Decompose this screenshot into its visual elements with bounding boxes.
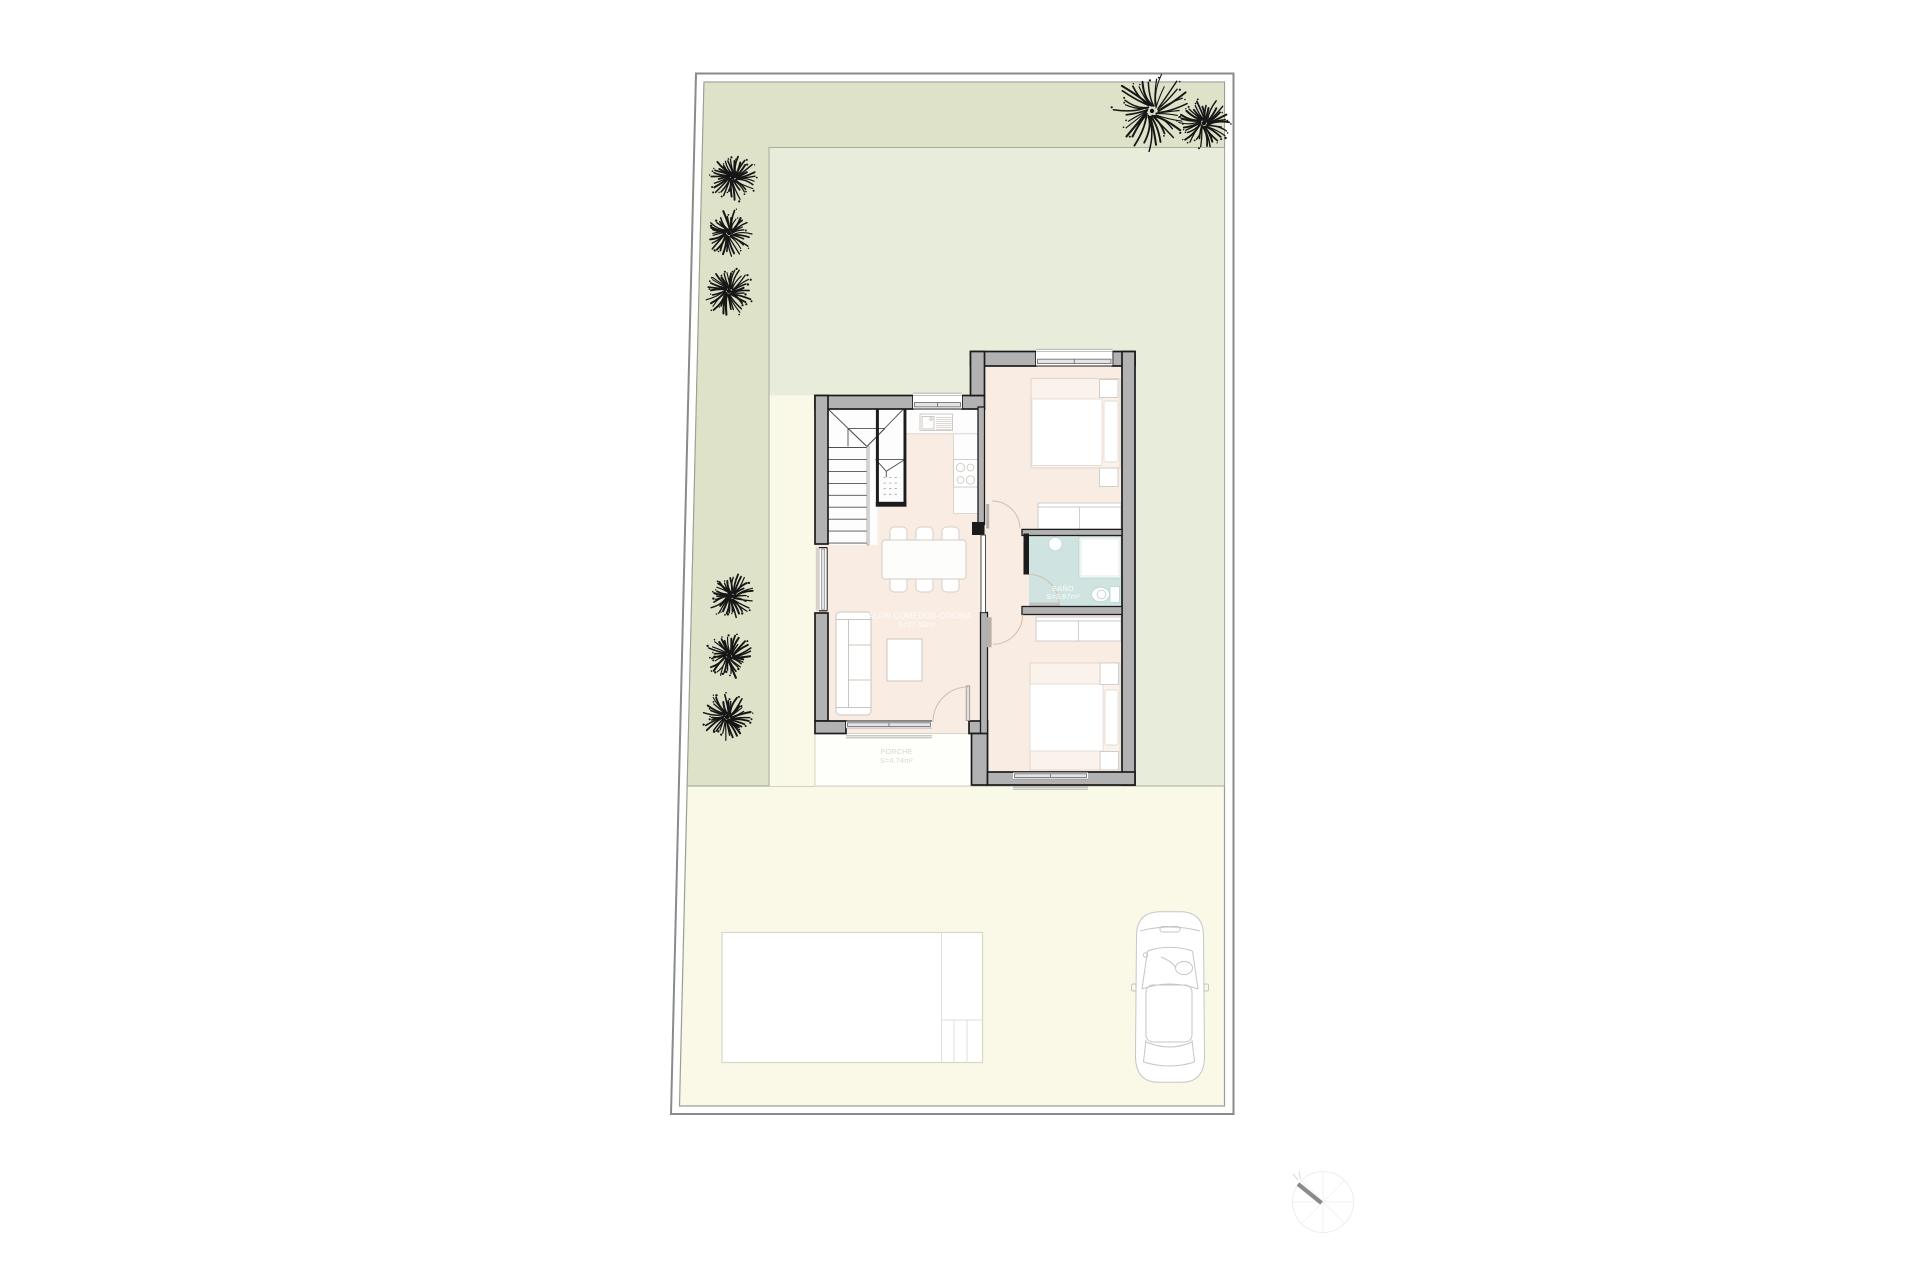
svg-text:S=3.87m²: S=3.87m² — [1046, 592, 1080, 601]
svg-text:S=27.53m²: S=27.53m² — [898, 620, 936, 629]
svg-text:S=4.74m²: S=4.74m² — [880, 756, 913, 765]
svg-text:PORCHE: PORCHE — [881, 747, 913, 756]
svg-text:S=11.3m²: S=11.3m² — [1048, 712, 1082, 721]
svg-text:S=12.16m²: S=12.16m² — [1043, 430, 1081, 439]
